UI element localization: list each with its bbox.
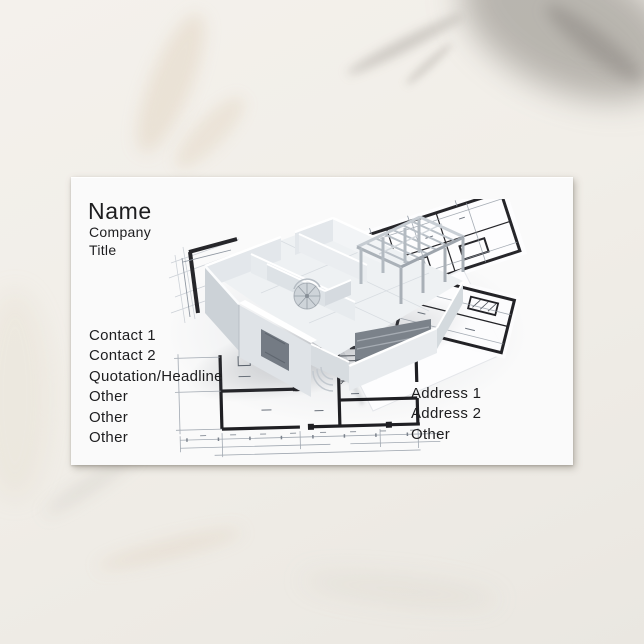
address-line-2: Address 2 <box>411 404 481 424</box>
marble-vein <box>0 290 50 500</box>
card-name-text: Name <box>88 199 152 224</box>
marble-background: Name Company Title Contact 1 Contact 2 Q… <box>0 0 644 644</box>
business-card: Name Company Title Contact 1 Contact 2 Q… <box>71 177 573 465</box>
card-address-block: Address 1 Address 2 Other <box>411 384 481 445</box>
marble-vein <box>95 522 245 576</box>
address-other-line: Other <box>411 425 481 445</box>
marble-vein <box>123 6 218 161</box>
contact-line-1: Contact 1 <box>89 326 223 346</box>
marble-vein <box>438 0 644 131</box>
marble-vein <box>344 9 466 80</box>
marble-vein <box>166 88 254 177</box>
other-line-3: Other <box>89 428 223 448</box>
card-title-text: Title <box>89 242 116 258</box>
marble-vein <box>299 565 501 616</box>
other-line-1: Other <box>89 387 223 407</box>
other-line-2: Other <box>89 408 223 428</box>
quotation-headline-line: Quotation/Headline <box>89 367 223 387</box>
card-contact-block: Contact 1 Contact 2 Quotation/Headline O… <box>89 326 223 448</box>
address-line-1: Address 1 <box>411 384 481 404</box>
contact-line-2: Contact 2 <box>89 346 223 366</box>
marble-vein <box>539 0 644 90</box>
marble-vein <box>403 40 454 87</box>
card-company-text: Company <box>89 224 151 240</box>
